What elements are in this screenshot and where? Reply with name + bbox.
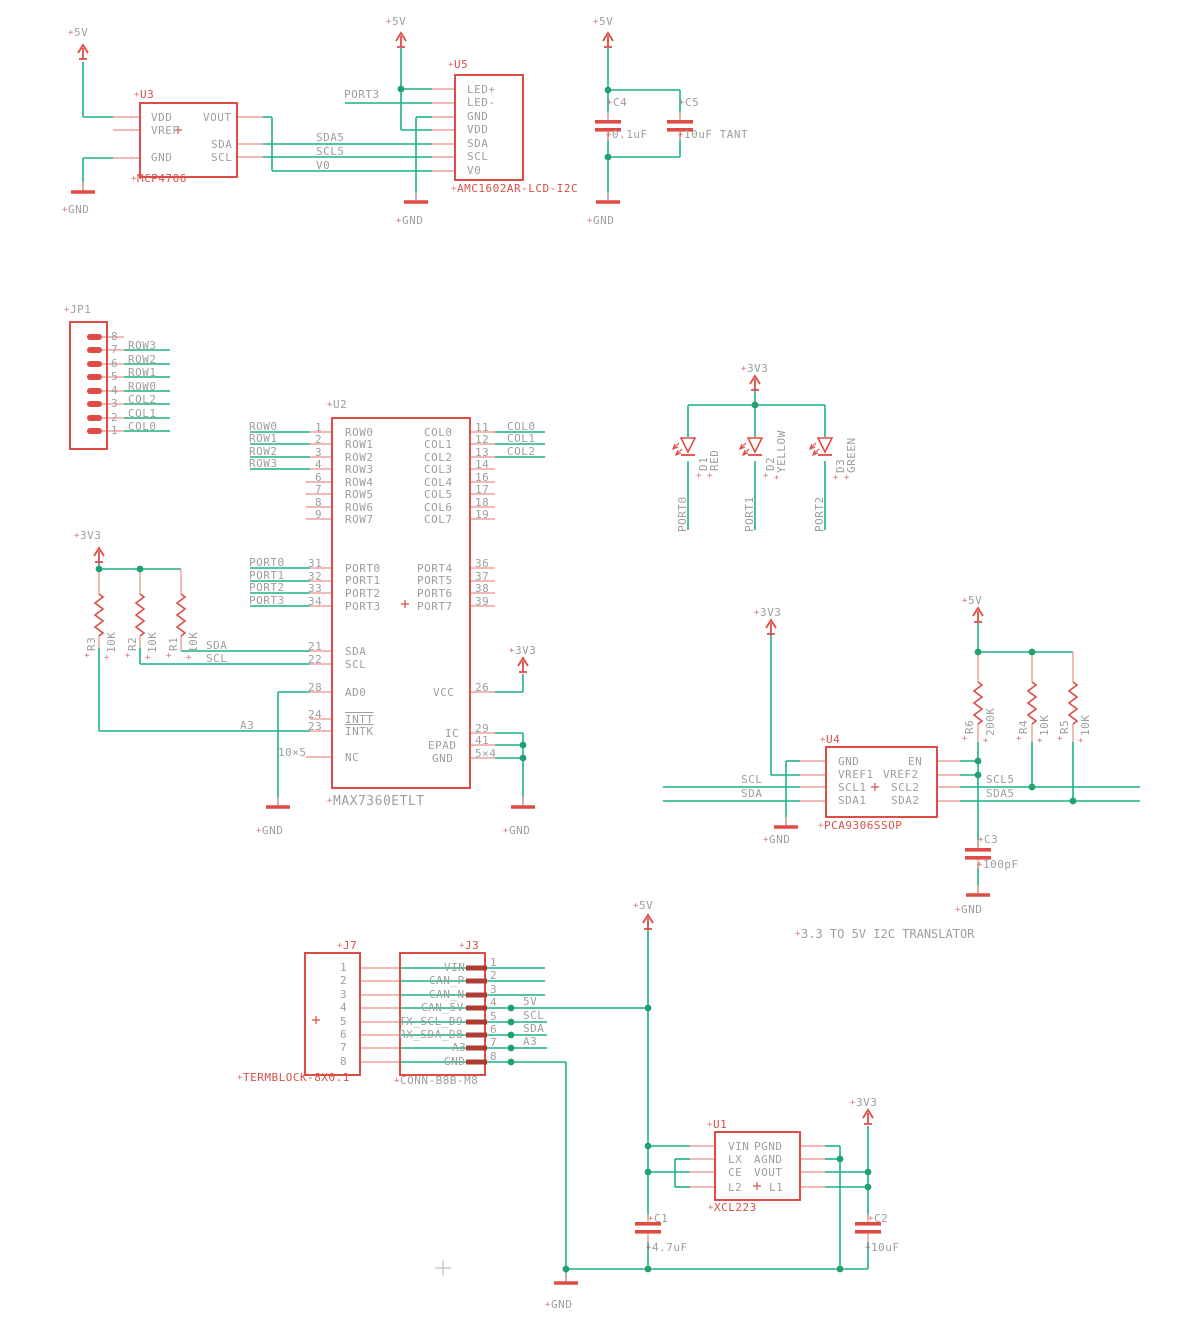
- u4-pin-sda1: SDA1: [838, 794, 867, 807]
- text-origin-cross: +: [818, 822, 823, 831]
- u5-pwr-5v: 5V: [392, 15, 406, 28]
- junction-dot: [605, 87, 612, 94]
- net-a3-u2: A3: [240, 719, 254, 732]
- u3-pin-scl: SCL: [211, 151, 232, 164]
- u1-pin-lx: LX: [728, 1153, 742, 1166]
- net-row3-u2: ROW3: [249, 457, 278, 470]
- junction-dot: [508, 1045, 515, 1052]
- junction-dot: [837, 1156, 844, 1163]
- u2-vcc-3v3-symbol: [518, 658, 528, 672]
- net-scl-u2: SCL: [206, 652, 227, 665]
- junction-dot: [645, 1143, 652, 1150]
- text-origin-cross: +: [707, 472, 712, 481]
- text-origin-cross: +: [145, 654, 150, 663]
- c3-capacitor: [965, 848, 991, 852]
- c2-ref: C2: [874, 1212, 888, 1225]
- net-sda-j3: SDA: [523, 1022, 544, 1035]
- u2-name-row3: ROW3: [345, 463, 374, 476]
- junction-dot: [1070, 798, 1077, 805]
- c5-ref: C5: [685, 96, 699, 109]
- junction-dot: [865, 1184, 872, 1191]
- u4-5v-symbol: [973, 608, 983, 622]
- u1-3v3-symbol: [863, 1110, 873, 1124]
- u4-pin-scl1: SCL1: [838, 781, 867, 794]
- text-origin-cross: +: [850, 1099, 855, 1108]
- junction-dot: [520, 755, 527, 762]
- j3-pin1-num: 1: [490, 956, 497, 969]
- text-origin-cross: +: [62, 206, 67, 215]
- origin-cross: [401, 600, 409, 608]
- junction-dot: [605, 154, 612, 161]
- u2-pin26-num: 26: [475, 681, 489, 694]
- j3-pad: [466, 1033, 487, 1038]
- r3-ref: R3: [85, 637, 98, 651]
- net-row3-jp: ROW3: [128, 339, 157, 352]
- r6-val: 200K: [984, 708, 997, 737]
- u2-pin34-num: 34: [308, 595, 322, 608]
- crosshair-cursor: [435, 1260, 451, 1276]
- d1-val: RED: [708, 450, 721, 471]
- led-emission-arrow: [673, 443, 679, 449]
- text-origin-cross: +: [955, 906, 960, 915]
- c1-ref: C1: [654, 1212, 668, 1225]
- text-origin-cross: +: [104, 654, 109, 663]
- text-origin-cross: +: [820, 736, 825, 745]
- j7-pin3-num: 3: [340, 988, 347, 1001]
- u2-name-col5: COL5: [424, 488, 453, 501]
- u5-gnd-label: GND: [402, 214, 423, 227]
- u5-pin-sda: SDA: [467, 137, 488, 150]
- j7-pin8-num: 8: [340, 1055, 347, 1068]
- c3-gnd-label: GND: [961, 903, 982, 916]
- u2-pin22-num: 22: [308, 653, 322, 666]
- jp1-pad: [87, 334, 102, 340]
- net-col1-u2: COL1: [507, 432, 536, 445]
- j3-body: [400, 953, 485, 1075]
- r5-ref: R5: [1058, 720, 1071, 734]
- u3-pin-gnd: GND: [151, 151, 172, 164]
- text-origin-cross: +: [648, 1215, 653, 1224]
- text-origin-cross: +: [741, 365, 746, 374]
- j3-net-gnd: GND: [444, 1055, 465, 1068]
- origin-cross: [871, 783, 879, 791]
- j3-pad: [466, 1006, 487, 1011]
- junction-dot: [508, 1005, 515, 1012]
- schematic-shapes-layer: [0, 0, 1200, 1325]
- net-col1-jp: COL1: [128, 407, 157, 420]
- j7-ref: J7: [343, 939, 357, 952]
- junction-dot: [837, 1266, 844, 1273]
- text-origin-cross: +: [962, 597, 967, 606]
- text-origin-cross: +: [64, 306, 69, 315]
- text-origin-cross: +: [679, 99, 684, 108]
- net-port2-led: PORT2: [813, 496, 826, 532]
- junction-dot: [645, 1266, 652, 1273]
- text-origin-cross: +: [396, 217, 401, 226]
- jp1-pin3-num: 3: [111, 397, 118, 410]
- u2-pin23-num: 23: [308, 720, 322, 733]
- c4-ref: C4: [613, 96, 627, 109]
- text-origin-cross: +: [125, 652, 130, 661]
- u2-val: MAX7360ETLT: [333, 794, 425, 809]
- text-origin-cross: +: [844, 474, 849, 483]
- net-row1-u2: ROW1: [249, 432, 278, 445]
- junction-dot: [752, 402, 759, 409]
- d3-val: GREEN: [845, 437, 858, 473]
- u2-pin-epad: EPAD: [428, 739, 457, 752]
- origin-cross: [312, 1016, 320, 1024]
- jp1-pin2-num: 2: [111, 411, 118, 424]
- net-sda-u4: SDA: [741, 787, 762, 800]
- junction-dot: [975, 772, 982, 779]
- net-sda-u2: SDA: [206, 639, 227, 652]
- u2-pin28-num: 28: [308, 681, 322, 694]
- reg-5v: 5V: [639, 899, 653, 912]
- u2-name-port5: PORT5: [417, 574, 453, 587]
- text-origin-cross: +: [256, 827, 261, 836]
- u4-3v3: 3V3: [760, 606, 781, 619]
- u4-pin-sda2: SDA2: [891, 794, 920, 807]
- net-sda5-top: SDA5: [316, 131, 345, 144]
- u2-ref: U2: [333, 398, 347, 411]
- u2-pin4-num: 4: [315, 458, 322, 471]
- u5-pin-vdd: VDD: [467, 123, 488, 136]
- text-origin-cross: +: [545, 1301, 550, 1310]
- j3-pin2-num: 2: [490, 969, 497, 982]
- u3-pwr-5v: 5V: [74, 26, 88, 39]
- u2-pin-vcc: VCC: [433, 686, 454, 699]
- u2-pin7-num: 7: [315, 483, 322, 496]
- u2-pinnc-num: 10×5: [278, 746, 307, 759]
- u4-pin-gnd: GND: [838, 755, 859, 768]
- text-origin-cross: +: [587, 217, 592, 226]
- u1-3v3: 3V3: [856, 1096, 877, 1109]
- u3-ref: U3: [140, 88, 154, 101]
- text-origin-cross: +: [1078, 737, 1083, 746]
- d2-led: [748, 438, 762, 452]
- junction-dot: [520, 742, 527, 749]
- jp1-pin5-num: 5: [111, 370, 118, 383]
- text-origin-cross: +: [607, 99, 612, 108]
- net-port2-u2: PORT2: [249, 581, 285, 594]
- u2-pin21-num: 21: [308, 640, 322, 653]
- text-origin-cross: +: [448, 61, 453, 70]
- net-port3-u2: PORT3: [249, 594, 285, 607]
- net-port1-led: PORT1: [743, 496, 756, 532]
- u2-name-row5: ROW5: [345, 488, 374, 501]
- r6-ref: R6: [963, 720, 976, 734]
- u2-pin33-num: 33: [308, 582, 322, 595]
- text-origin-cross: +: [186, 654, 191, 663]
- u2-pin39-num: 39: [475, 595, 489, 608]
- junction-dot: [137, 566, 144, 573]
- net-row0-jp: ROW0: [128, 380, 157, 393]
- text-origin-cross: +: [166, 652, 171, 661]
- schematic-canvas: 5V+U3+VDDVREFGNDVOUTSDASCLMCP4706+GND+SD…: [0, 0, 1200, 1325]
- u2-pin-scl: SCL: [345, 658, 366, 671]
- u1-val: XCL223: [714, 1201, 757, 1214]
- u2-gnd-right: GND: [509, 824, 530, 837]
- text-origin-cross: +: [74, 532, 79, 541]
- r4-resistor: [1028, 682, 1036, 724]
- r5-resistor: [1069, 682, 1077, 724]
- u4-gnd-label: GND: [769, 833, 790, 846]
- r6-resistor: [974, 682, 982, 724]
- net-row2-jp: ROW2: [128, 353, 157, 366]
- u5-pin-gnd: GND: [467, 110, 488, 123]
- j7-pin7-num: 7: [340, 1041, 347, 1054]
- u2-pin14-num: 14: [475, 458, 489, 471]
- u4-val: PCA9306SSOP: [824, 819, 902, 832]
- u2-pin-sda: SDA: [345, 645, 366, 658]
- u2-name-col7: COL7: [424, 513, 453, 526]
- c4-capacitor: [595, 120, 621, 124]
- j3-pad: [466, 966, 487, 971]
- bottom-gnd-label: GND: [551, 1298, 572, 1311]
- text-origin-cross: +: [633, 902, 638, 911]
- j3-pad: [466, 1060, 487, 1065]
- u4-pin-vref2: VREF2: [883, 768, 919, 781]
- u2-pin12-num: 12: [475, 433, 489, 446]
- u3-pin-vdd: VDD: [151, 111, 172, 124]
- j3-pad: [466, 979, 487, 984]
- c5-val: 10uF TANT: [684, 128, 748, 141]
- text-origin-cross: +: [606, 131, 611, 140]
- j3-net-rxsda: RX_SDA_D8: [399, 1028, 463, 1041]
- u3-val: MCP4706: [137, 172, 187, 185]
- r2-val: 10K: [146, 632, 159, 653]
- net-v0: V0: [316, 159, 330, 172]
- u2-pin19-num: 19: [475, 508, 489, 521]
- u2-name-row1: ROW1: [345, 438, 374, 451]
- j3-net-canp: CAN_P: [429, 974, 465, 987]
- text-origin-cross: +: [763, 472, 768, 481]
- jp1-pin6-num: 6: [111, 357, 118, 370]
- j3-net-vin: VIN: [444, 961, 465, 974]
- pullup-3v3-symbol: [94, 548, 104, 562]
- jp1-pad: [87, 361, 102, 367]
- r1-resistor: [177, 594, 185, 636]
- text-origin-cross: +: [774, 474, 779, 483]
- net-scl-j3: SCL: [523, 1009, 544, 1022]
- u2-pin36-num: 36: [475, 557, 489, 570]
- u1-pin-ce: CE: [728, 1166, 742, 1179]
- c1-capacitor: [635, 1230, 661, 1234]
- u2-pin38-num: 38: [475, 582, 489, 595]
- jp1-pin8-num: 8: [111, 330, 118, 343]
- j7-pin2-num: 2: [340, 974, 347, 987]
- leds-3v3: 3V3: [747, 362, 768, 375]
- jp1-pad: [87, 401, 102, 407]
- text-origin-cross: +: [337, 942, 342, 951]
- junction-dot: [508, 1019, 515, 1026]
- text-origin-cross: +: [84, 652, 89, 661]
- u2-name-port3: PORT3: [345, 600, 381, 613]
- u5-val: AMC1602AR-LCD-I2C: [457, 182, 578, 195]
- junction-dot: [1029, 649, 1036, 656]
- text-origin-cross: +: [134, 91, 139, 100]
- text-origin-cross: +: [459, 942, 464, 951]
- u5-pin-scl: SCL: [467, 150, 488, 163]
- junction-dot: [1029, 784, 1036, 791]
- jp1-pad: [87, 374, 102, 380]
- text-origin-cross: +: [763, 836, 768, 845]
- u3-5v-symbol: [78, 45, 88, 59]
- net-port0-u2: PORT0: [249, 556, 285, 569]
- r4-ref: R4: [1017, 720, 1030, 734]
- j7-pin6-num: 6: [340, 1028, 347, 1041]
- u2-name-col3: COL3: [424, 463, 453, 476]
- j3-ref: J3: [465, 939, 479, 952]
- u2-pin-ad0: AD0: [345, 686, 366, 699]
- text-origin-cross: +: [386, 18, 391, 27]
- j3-pin8-num: 8: [490, 1050, 497, 1063]
- jp1-pin1-num: 1: [111, 424, 118, 437]
- net-5v-j3: 5V: [523, 995, 537, 1008]
- text-origin-cross: +: [977, 861, 982, 870]
- r3-resistor: [95, 594, 103, 636]
- u5-pin-ledm: LED-: [467, 96, 496, 109]
- u4-3v3-symbol: [766, 620, 776, 634]
- junction-dot: [975, 758, 982, 765]
- reg-5v-symbol: [643, 915, 653, 929]
- junction-dot: [865, 1169, 872, 1176]
- j7-pin4-num: 4: [340, 1001, 347, 1014]
- u4-ref: U4: [826, 733, 840, 746]
- u1-pin-vin: VIN: [728, 1140, 749, 1153]
- r1-ref: R1: [167, 637, 180, 651]
- text-origin-cross: +: [833, 474, 838, 483]
- junction-dot: [975, 649, 982, 656]
- text-origin-cross: +: [678, 131, 683, 140]
- c1-val: 4.7uF: [652, 1241, 688, 1254]
- text-origin-cross: +: [978, 836, 983, 845]
- u3-pin-vout: VOUT: [203, 111, 232, 124]
- u2-gnd-left: GND: [262, 824, 283, 837]
- text-origin-cross: +: [593, 18, 598, 27]
- j3-net-cann: CAN_N: [429, 988, 465, 1001]
- c4-val: 0.1uF: [612, 128, 648, 141]
- r5-val: 10K: [1079, 715, 1092, 736]
- led-3v3-symbol: [750, 376, 760, 390]
- junction-dot: [508, 1032, 515, 1039]
- u2-name-port6: PORT6: [417, 587, 453, 600]
- d3-led: [818, 438, 832, 452]
- r4-val: 10K: [1038, 715, 1051, 736]
- j3-val: CONN-B8B-M8: [400, 1074, 478, 1087]
- text-origin-cross: +: [131, 175, 136, 184]
- j3-pin3-num: 3: [490, 983, 497, 996]
- junction-dot: [398, 86, 405, 93]
- u1-pin-vout: VOUT: [754, 1166, 783, 1179]
- text-origin-cross: +: [503, 827, 508, 836]
- u3-pin-sda: SDA: [211, 138, 232, 151]
- text-origin-cross: +: [68, 29, 73, 38]
- jp1-ref: JP1: [70, 303, 91, 316]
- text-origin-cross: +: [646, 1244, 651, 1253]
- c4c5-pwr-5v: 5V: [599, 15, 613, 28]
- text-origin-cross: +: [962, 735, 967, 744]
- u3-pin-vref: VREF: [151, 124, 180, 137]
- r1-val: 10K: [187, 632, 200, 653]
- text-origin-cross: +: [327, 797, 332, 806]
- u3-gnd-label: GND: [68, 203, 89, 216]
- u1-pin-l1: L1: [769, 1181, 783, 1194]
- junction-dot: [645, 1169, 652, 1176]
- u2-name-port2: PORT2: [345, 587, 381, 600]
- j3-pin5-num: 5: [490, 1010, 497, 1023]
- text-origin-cross: +: [1037, 737, 1042, 746]
- junction-dot: [645, 1005, 652, 1012]
- j3-pin6-num: 6: [490, 1023, 497, 1036]
- c5-capacitor: [667, 120, 693, 124]
- c2-capacitor: [855, 1230, 881, 1234]
- j7-pin5-num: 5: [340, 1015, 347, 1028]
- u2-name-col1: COL1: [424, 438, 453, 451]
- u1-pin-agnd: AGND: [754, 1153, 783, 1166]
- u5-pin-ledp: LED+: [467, 83, 496, 96]
- net-sda5-u4: SDA5: [986, 787, 1015, 800]
- text-origin-cross: +: [451, 185, 456, 194]
- net-port0-led: PORT0: [676, 496, 689, 532]
- text-origin-cross: +: [1057, 735, 1062, 744]
- net-port3-lcd: PORT3: [344, 88, 380, 101]
- j3-net-txscl: TX_SCL_D9: [399, 1015, 463, 1028]
- text-origin-cross: +: [754, 609, 759, 618]
- text-origin-cross: +: [707, 1121, 712, 1130]
- text-origin-cross: +: [1016, 735, 1021, 744]
- u2-name-port1: PORT1: [345, 574, 381, 587]
- net-row1-jp: ROW1: [128, 366, 157, 379]
- u2-pullup-3v3: 3V3: [80, 529, 101, 542]
- r2-ref: R2: [126, 637, 139, 651]
- u1-pin-l2: L2: [728, 1181, 742, 1194]
- j7-body: [305, 953, 360, 1075]
- j7-pin1-num: 1: [340, 961, 347, 974]
- u2-pin-intk: INTK: [345, 725, 374, 738]
- u4-pin-en: EN: [908, 755, 922, 768]
- text-origin-cross: +: [795, 930, 800, 939]
- u5-5v-symbol: [396, 33, 406, 47]
- u2-pin41-num: 41: [475, 734, 489, 747]
- r2-resistor: [136, 594, 144, 636]
- u2-pin31-num: 31: [308, 557, 322, 570]
- text-origin-cross: +: [394, 1077, 399, 1086]
- j3-net-a3: A3: [452, 1041, 466, 1054]
- jp1-pad: [87, 388, 102, 394]
- j3-pin7-num: 7: [490, 1036, 497, 1049]
- text-origin-cross: +: [696, 472, 701, 481]
- net-scl5-u4: SCL5: [986, 773, 1015, 786]
- u2-name-row7: ROW7: [345, 513, 374, 526]
- junction-dot: [96, 566, 103, 573]
- text-origin-cross: +: [868, 1215, 873, 1224]
- text-origin-cross: +: [983, 737, 988, 746]
- net-scl5-top: SCL5: [316, 145, 345, 158]
- u4-5v: 5V: [968, 594, 982, 607]
- c4c5-gnd-label: GND: [593, 214, 614, 227]
- j3-pad: [466, 1046, 487, 1051]
- junction-dot: [508, 1059, 515, 1066]
- u2-pin-nc: NC: [345, 751, 359, 764]
- d1-led: [681, 438, 695, 452]
- u2-pingnd-num: 5×4: [475, 747, 496, 760]
- j3-pad: [466, 1020, 487, 1025]
- j3-pad: [466, 993, 487, 998]
- text-origin-cross: +: [327, 401, 332, 410]
- net-col2-u2: COL2: [507, 445, 536, 458]
- jp1-pad: [87, 347, 102, 353]
